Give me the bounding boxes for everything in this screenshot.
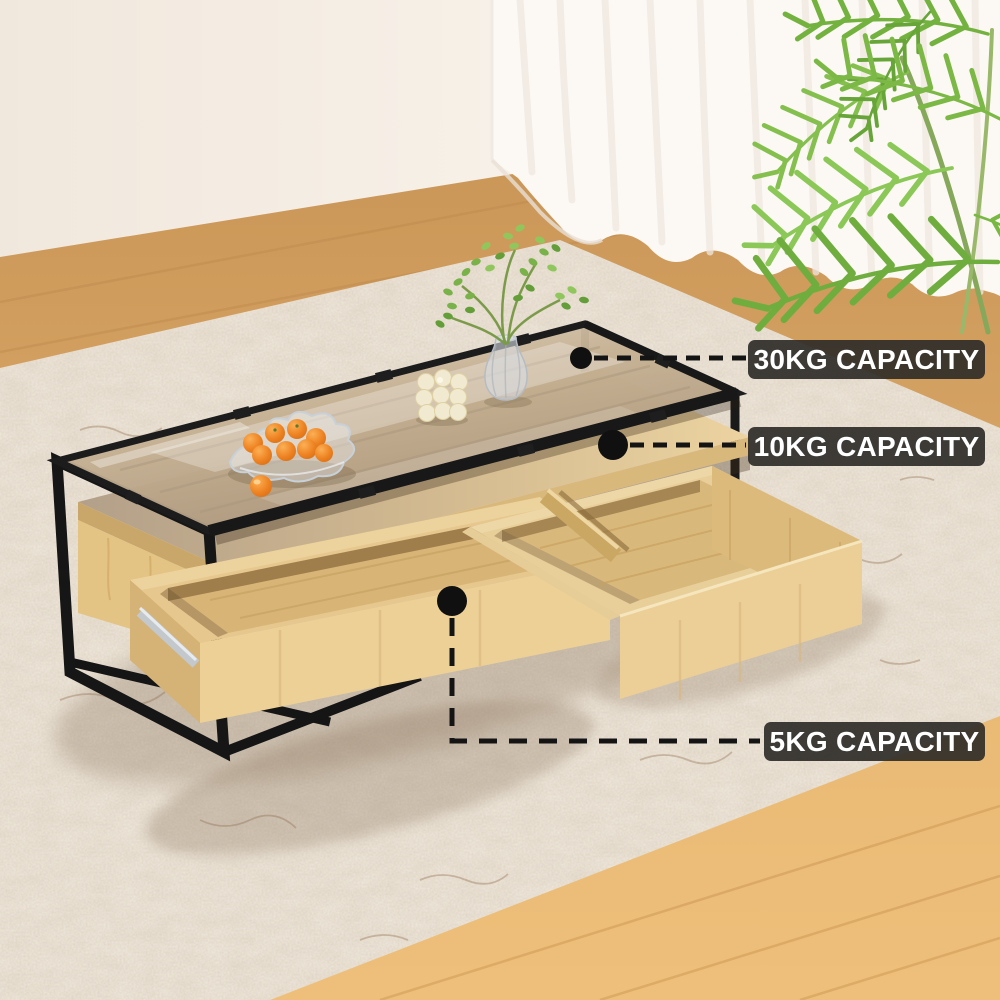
leader-dot-30kg — [570, 347, 592, 369]
capacity-label-30kg: 30KG CAPACITY — [748, 340, 985, 379]
capacity-label-10kg: 10KG CAPACITY — [748, 427, 985, 466]
capacity-label-5kg: 5KG CAPACITY — [764, 722, 985, 761]
leader-dot-10kg — [598, 430, 628, 460]
bubble-candle — [416, 370, 469, 427]
room-photo — [0, 0, 1000, 1000]
product-screenshot: 30KG CAPACITY 10KG CAPACITY 5KG CAPACITY — [0, 0, 1000, 1000]
leader-dot-5kg — [437, 586, 467, 616]
